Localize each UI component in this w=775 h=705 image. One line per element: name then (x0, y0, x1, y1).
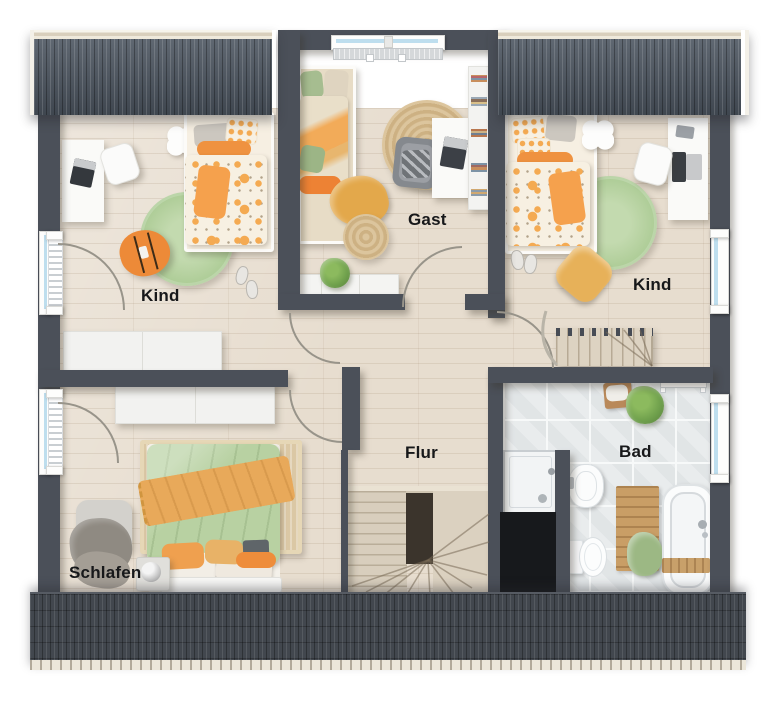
window-swing-arc (58, 244, 124, 310)
window-swing-arc (58, 403, 118, 463)
roof-top-left (30, 30, 276, 115)
roof-tiles (30, 592, 746, 662)
roof-gutter (34, 30, 272, 39)
roof-gutter (498, 30, 741, 39)
room-label-kind-right: Kind (633, 275, 672, 295)
roof-tiles (34, 39, 272, 115)
room-label-flur: Flur (405, 443, 438, 463)
door-arc-schlafen (290, 390, 342, 442)
stair-winder-lines (352, 330, 652, 596)
room-label-bad: Bad (619, 442, 652, 462)
roof-top-right (498, 30, 749, 115)
roof-bottom (30, 592, 746, 670)
room-label-schlafen: Schlafen (69, 563, 141, 583)
roof-tiles (498, 39, 741, 115)
room-label-gast: Gast (408, 210, 447, 230)
floor-plan: Kind Gast Kind Flur Bad Schlafen (0, 0, 775, 705)
door-arc-kind-left (290, 313, 340, 363)
roof-gutter (30, 660, 746, 670)
door-arc-gast (403, 247, 462, 307)
room-label-kind-left: Kind (141, 286, 180, 306)
